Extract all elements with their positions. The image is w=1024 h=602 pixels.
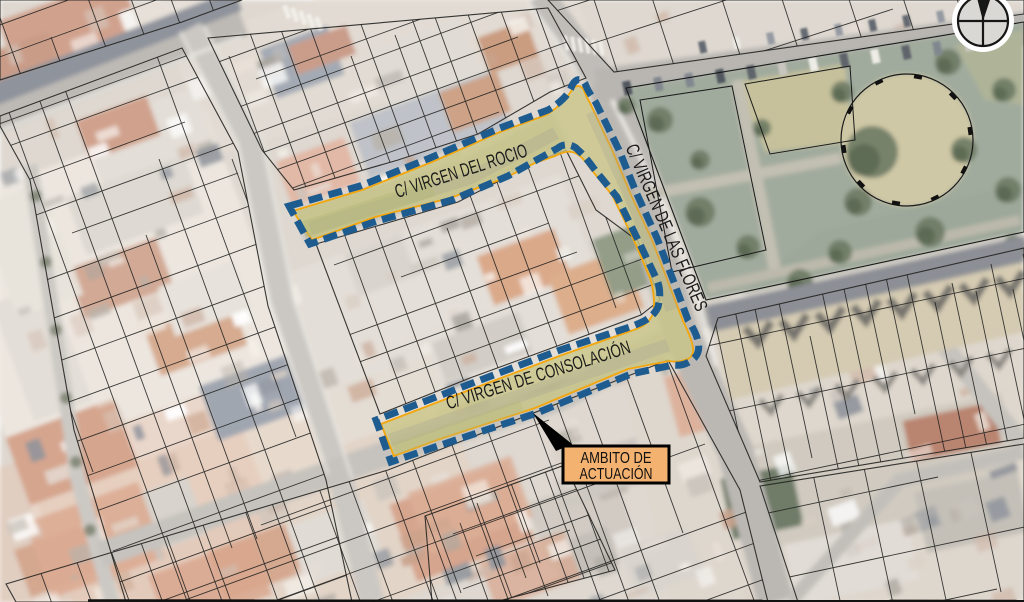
svg-text:AMBITO DE: AMBITO DE: [581, 450, 652, 467]
svg-text:ACTUACIÓN: ACTUACIÓN: [580, 464, 653, 483]
